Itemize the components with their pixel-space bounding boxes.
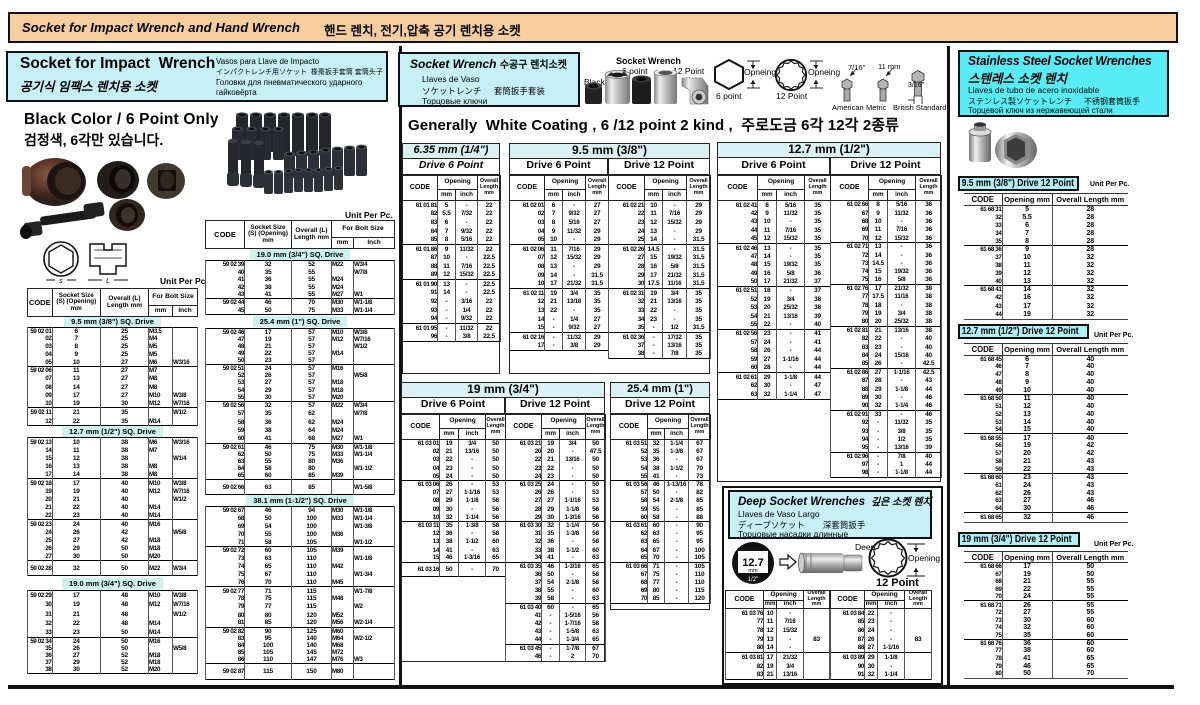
svg-text:s: s bbox=[59, 278, 63, 285]
svg-text:1/2": 1/2" bbox=[748, 577, 758, 583]
svg-text:mm: mm bbox=[748, 568, 758, 574]
svg-text:L: L bbox=[106, 278, 110, 285]
